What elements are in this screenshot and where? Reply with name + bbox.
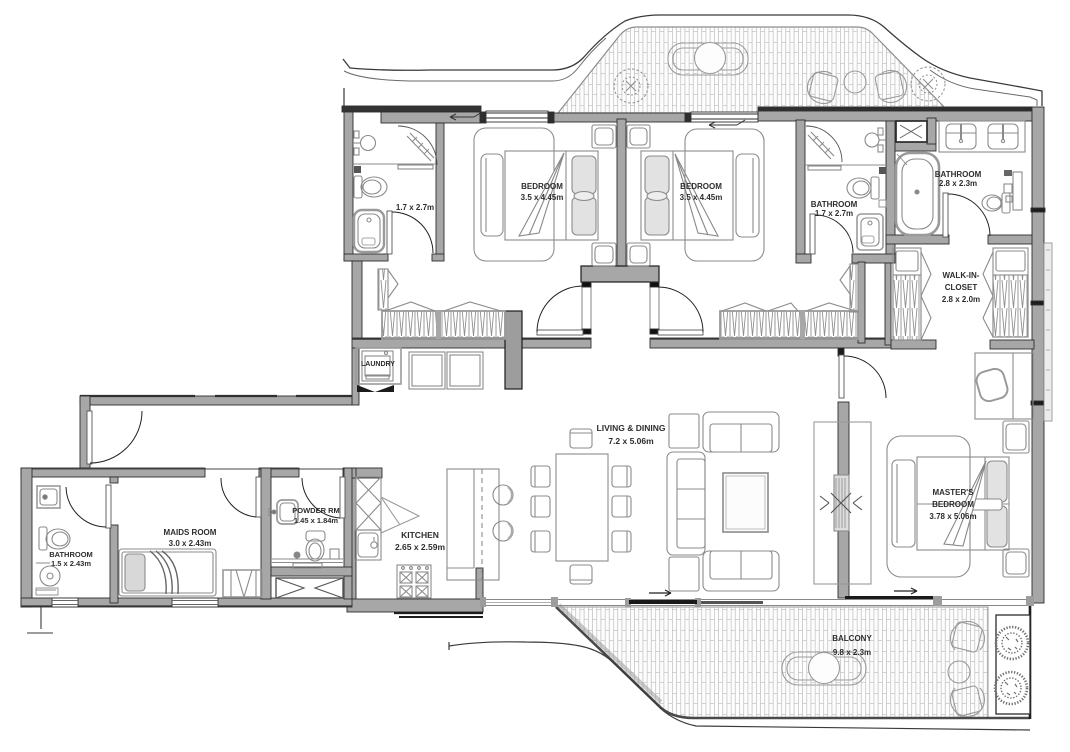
- svg-text:MASTER'S: MASTER'S: [932, 488, 974, 497]
- svg-text:BALCONY: BALCONY: [832, 634, 872, 643]
- svg-text:MAIDS ROOM: MAIDS ROOM: [164, 528, 217, 537]
- svg-text:BATHROOM: BATHROOM: [935, 170, 982, 179]
- svg-text:LIVING & DINING: LIVING & DINING: [597, 423, 666, 433]
- svg-text:3.5 x 4.45m: 3.5 x 4.45m: [521, 193, 564, 202]
- svg-text:POWDER RM: POWDER RM: [292, 506, 340, 515]
- svg-text:BATHROOM: BATHROOM: [811, 200, 858, 209]
- svg-text:WALK-IN-: WALK-IN-: [943, 271, 980, 280]
- svg-text:3.5 x 4.45m: 3.5 x 4.45m: [680, 193, 723, 202]
- svg-text:2.8 x 2.3m: 2.8 x 2.3m: [939, 179, 977, 188]
- svg-text:1.7 x 2.7m: 1.7 x 2.7m: [396, 203, 434, 212]
- svg-text:9.8 x 2.3m: 9.8 x 2.3m: [833, 648, 871, 657]
- svg-text:7.2 x 5.06m: 7.2 x 5.06m: [608, 436, 654, 446]
- svg-text:CLOSET: CLOSET: [945, 283, 978, 292]
- svg-text:BEDROOM: BEDROOM: [680, 182, 722, 191]
- svg-text:BEDROOM: BEDROOM: [932, 500, 974, 509]
- svg-text:1.45 x 1.84m: 1.45 x 1.84m: [294, 516, 339, 525]
- svg-text:3.0 x 2.43m: 3.0 x 2.43m: [169, 539, 212, 548]
- svg-text:KITCHEN: KITCHEN: [401, 530, 439, 540]
- svg-text:3.78 x 5.06m: 3.78 x 5.06m: [929, 512, 976, 521]
- svg-text:LAUNDRY: LAUNDRY: [361, 361, 395, 368]
- svg-text:BATHROOM: BATHROOM: [49, 550, 93, 559]
- svg-text:2.8 x 2.0m: 2.8 x 2.0m: [942, 295, 980, 304]
- svg-text:BEDROOM: BEDROOM: [521, 182, 563, 191]
- svg-text:1.7 x 2.7m: 1.7 x 2.7m: [815, 209, 853, 218]
- svg-text:2.65 x 2.59m: 2.65 x 2.59m: [395, 542, 446, 552]
- svg-text:1.5 x 2.43m: 1.5 x 2.43m: [51, 559, 91, 568]
